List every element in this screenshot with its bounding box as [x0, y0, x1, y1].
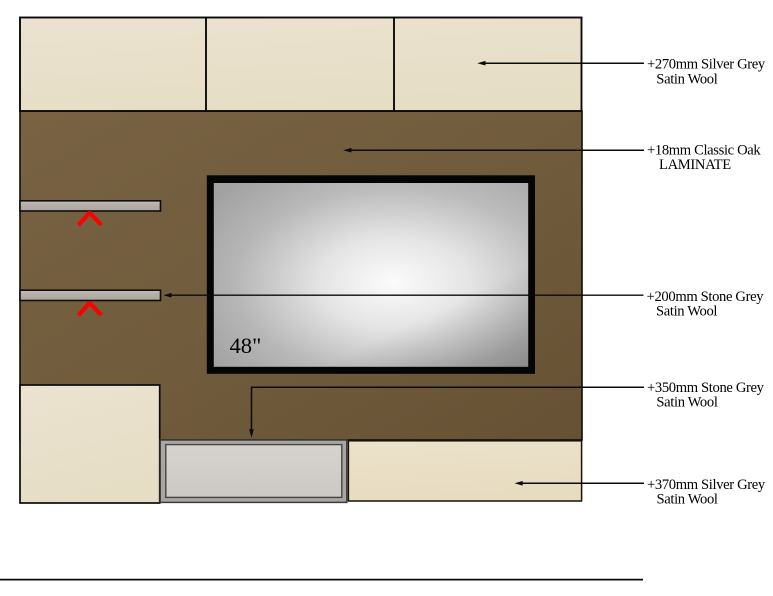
- svg-text:Satin Wool: Satin Wool: [656, 395, 717, 411]
- svg-text:+18mm Classic Oak: +18mm Classic Oak: [647, 142, 761, 158]
- svg-text:48": 48": [230, 333, 262, 358]
- svg-text:Satin Wool: Satin Wool: [657, 492, 718, 508]
- svg-text:+350mm Stone Grey: +350mm Stone Grey: [647, 380, 765, 396]
- svg-text:+370mm Silver Grey: +370mm Silver Grey: [647, 477, 766, 493]
- svg-text:LAMINATE: LAMINATE: [659, 157, 731, 173]
- svg-text:+200mm Stone Grey: +200mm Stone Grey: [647, 289, 765, 305]
- svg-text:Satin Wool: Satin Wool: [656, 71, 717, 87]
- svg-text:Satin Wool: Satin Wool: [656, 304, 717, 320]
- svg-text:+270mm Silver Grey: +270mm Silver Grey: [647, 57, 766, 73]
